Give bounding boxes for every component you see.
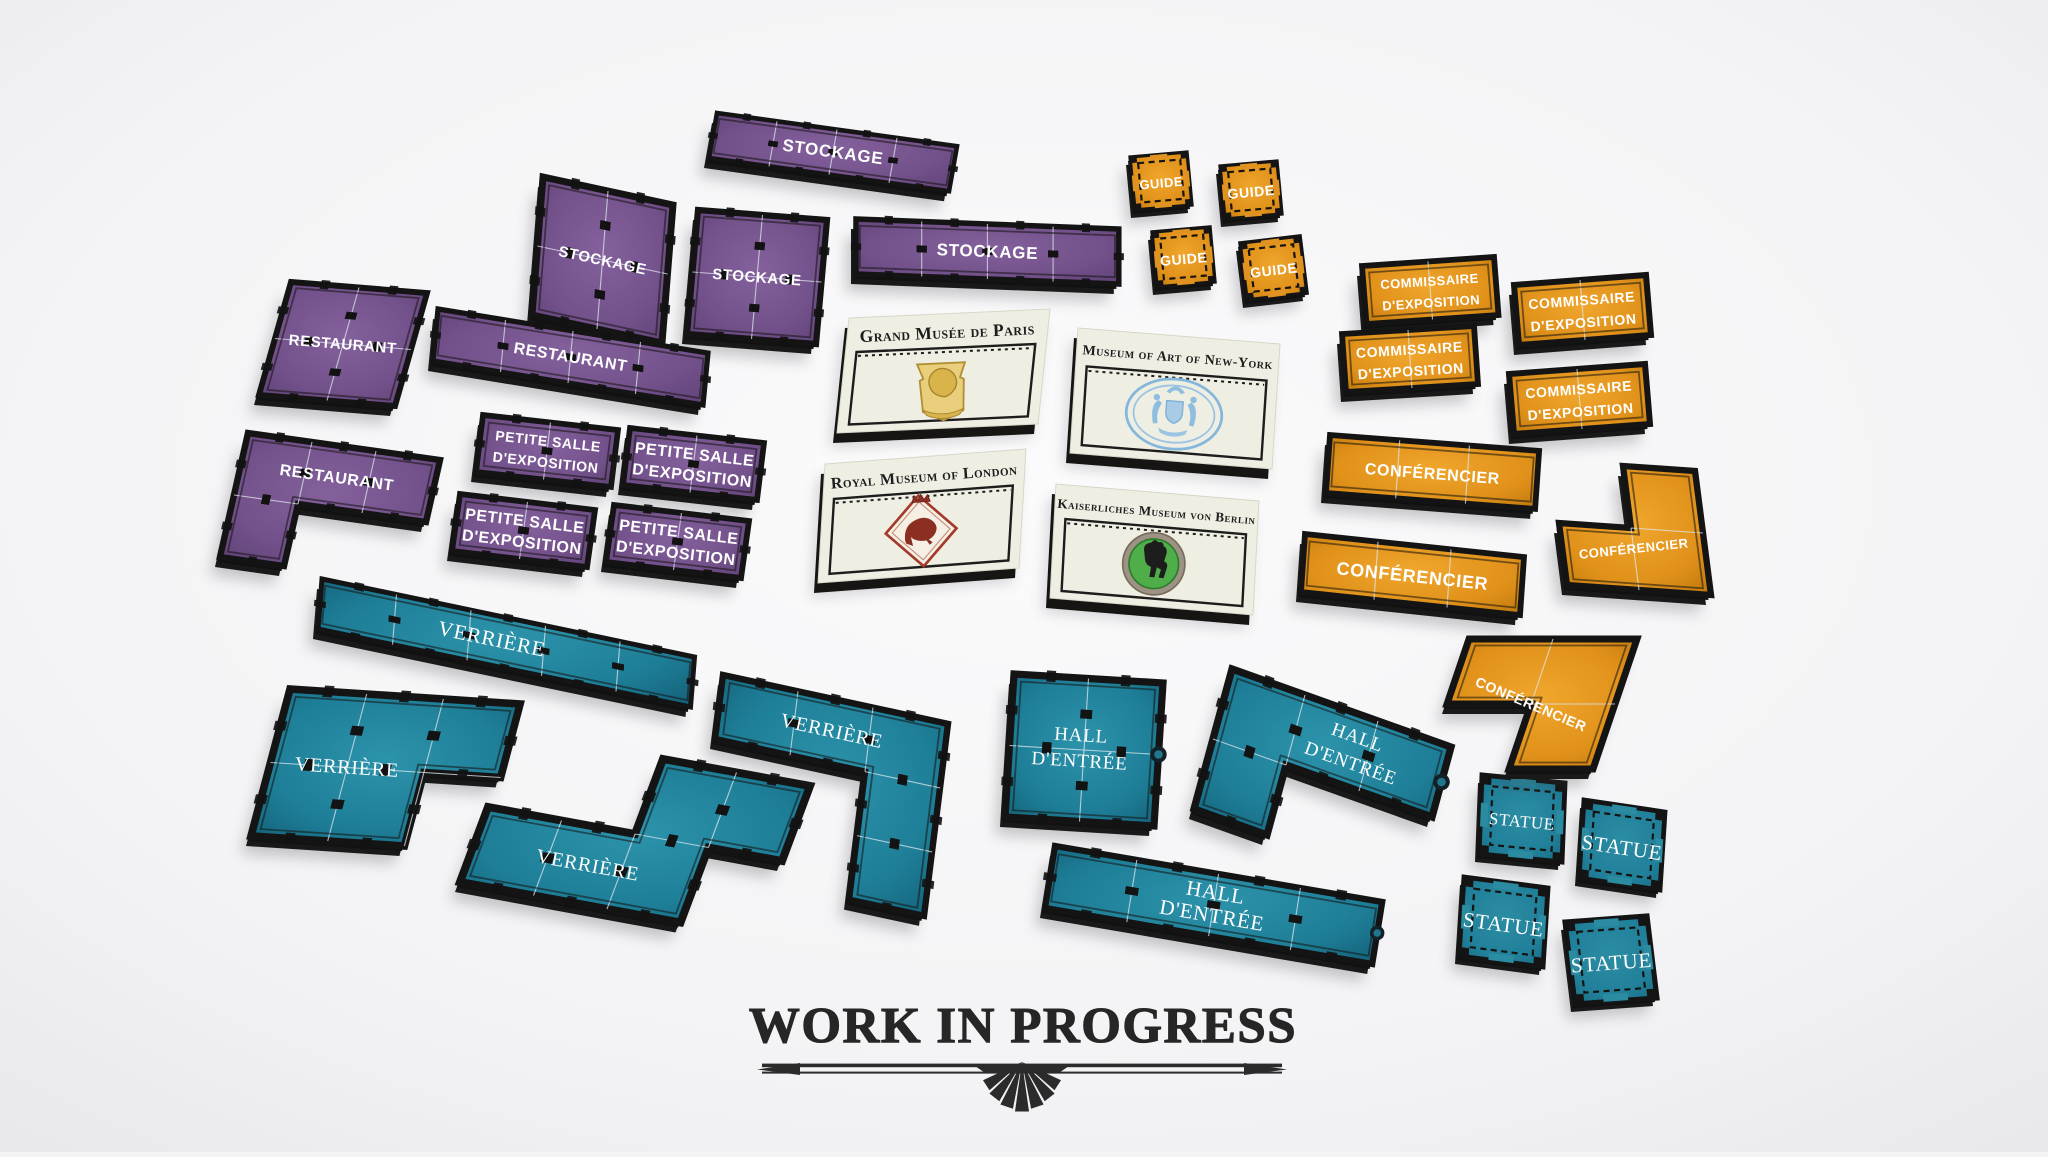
svg-text:WORK IN PROGRESS: WORK IN PROGRESS xyxy=(749,999,1297,1055)
svg-text:HALL: HALL xyxy=(1054,724,1109,748)
svg-text:STOCKAGE: STOCKAGE xyxy=(936,240,1038,263)
